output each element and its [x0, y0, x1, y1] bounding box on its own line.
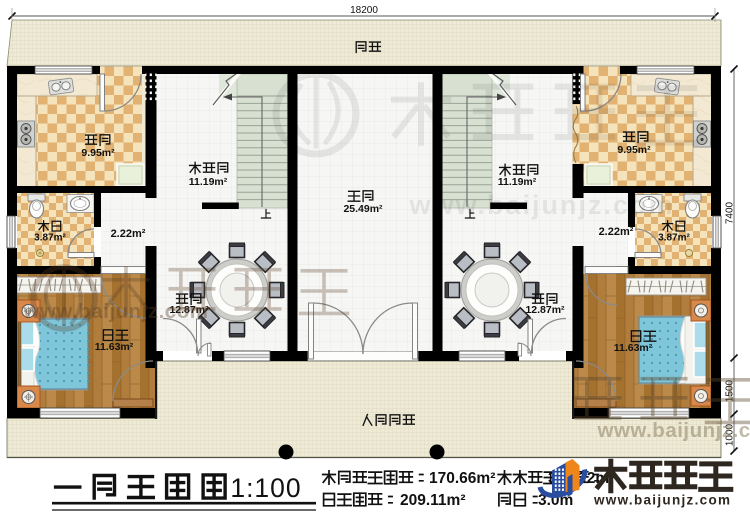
svg-text:11.19m²: 11.19m²: [189, 176, 228, 188]
svg-text:12.87m²: 12.87m²: [525, 304, 565, 316]
svg-text:7400: 7400: [725, 201, 736, 224]
svg-text:11.19m²: 11.19m²: [498, 176, 537, 188]
svg-text:3.87m²: 3.87m²: [34, 233, 66, 244]
svg-text:170.66m²: 170.66m²: [429, 470, 495, 487]
svg-text:www.baijunjz.com: www.baijunjz.com: [408, 190, 674, 220]
svg-text:www.baijunjz.com: www.baijunjz.com: [597, 419, 750, 442]
svg-text:18200: 18200: [350, 5, 378, 16]
svg-text:www.baijunjz.com: www.baijunjz.com: [23, 300, 209, 323]
svg-text:1:100: 1:100: [230, 473, 301, 503]
svg-text:11.63m²: 11.63m²: [614, 342, 653, 354]
svg-text:25.49m²: 25.49m²: [343, 203, 383, 215]
svg-text:2.22m²: 2.22m²: [111, 228, 146, 240]
svg-text:www.baijunjz.com: www.baijunjz.com: [593, 493, 731, 508]
svg-text:3.87m²: 3.87m²: [658, 233, 690, 244]
svg-text:11.63m²: 11.63m²: [95, 341, 134, 353]
svg-text:209.11m²: 209.11m²: [400, 492, 466, 509]
svg-text:9.95m²: 9.95m²: [81, 147, 115, 159]
svg-text:2.22m²: 2.22m²: [599, 226, 634, 238]
